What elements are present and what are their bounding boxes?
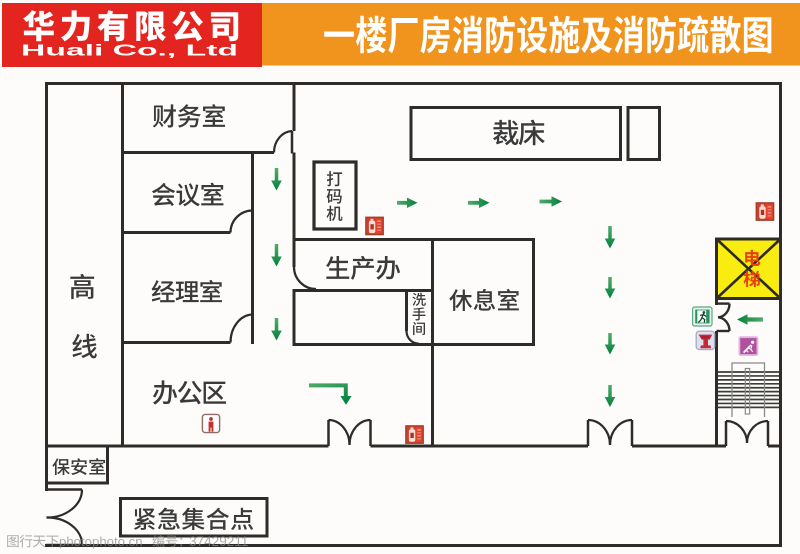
svg-text:photophoto.cn: photophoto.cn bbox=[59, 534, 143, 549]
svg-text:Huali Co., Ltd: Huali Co., Ltd bbox=[21, 43, 238, 60]
svg-text:37429211: 37429211 bbox=[189, 534, 248, 549]
